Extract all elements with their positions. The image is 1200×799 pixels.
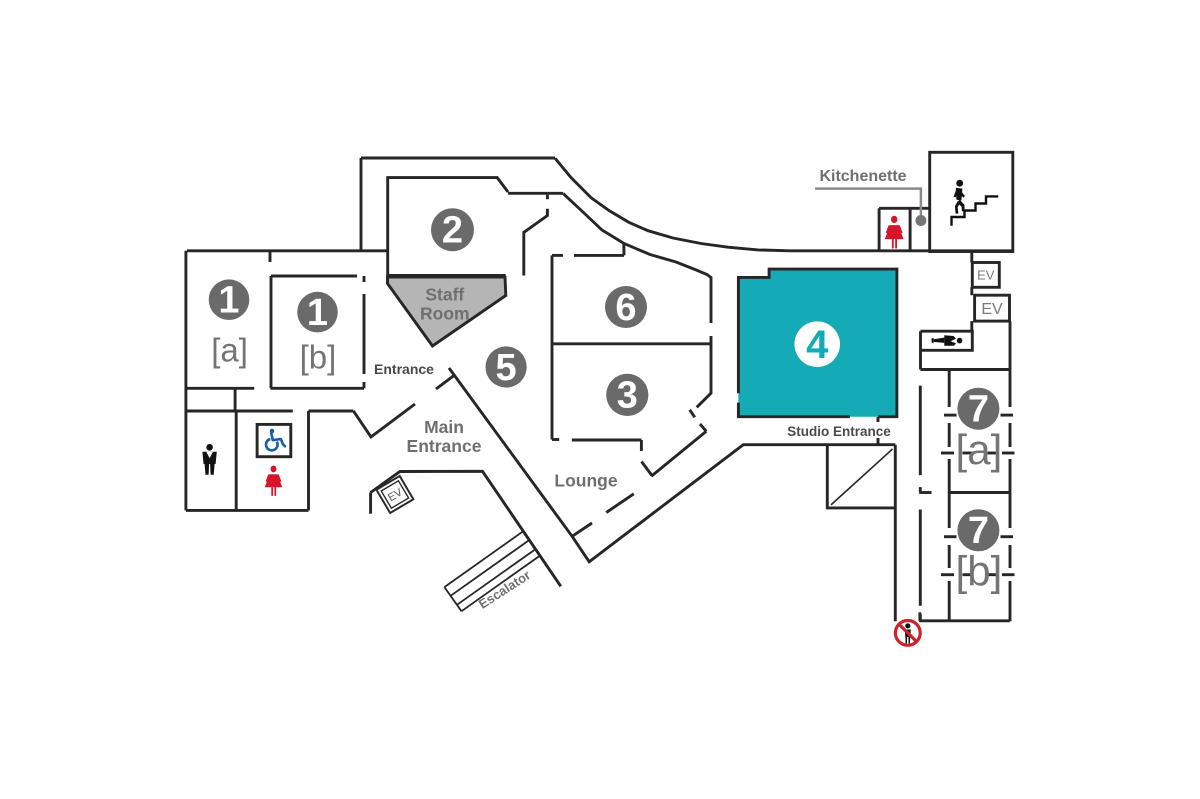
svg-text:Entrance: Entrance bbox=[407, 436, 482, 456]
svg-text:EV: EV bbox=[981, 301, 1003, 318]
svg-text:5: 5 bbox=[496, 347, 517, 389]
svg-text:EV: EV bbox=[977, 268, 995, 283]
svg-text:Kitchenette: Kitchenette bbox=[819, 168, 906, 185]
svg-text:[a]: [a] bbox=[211, 331, 248, 368]
svg-text:Room: Room bbox=[420, 304, 470, 324]
svg-text:1: 1 bbox=[218, 280, 239, 322]
svg-text:Main: Main bbox=[424, 417, 464, 437]
svg-text:Staff: Staff bbox=[425, 285, 464, 305]
svg-text:[a]: [a] bbox=[956, 426, 1003, 473]
svg-text:7: 7 bbox=[968, 389, 989, 431]
svg-text:2: 2 bbox=[442, 210, 463, 252]
svg-text:6: 6 bbox=[615, 287, 636, 329]
svg-text:Studio Entrance: Studio Entrance bbox=[787, 424, 891, 439]
svg-text:Lounge: Lounge bbox=[554, 471, 617, 491]
svg-text:3: 3 bbox=[617, 375, 638, 417]
svg-text:[b]: [b] bbox=[956, 547, 1003, 594]
svg-text:[b]: [b] bbox=[300, 339, 337, 376]
svg-text:Entrance: Entrance bbox=[374, 361, 434, 377]
svg-text:7: 7 bbox=[968, 510, 989, 552]
svg-text:1: 1 bbox=[307, 292, 328, 334]
svg-text:4: 4 bbox=[806, 323, 829, 367]
